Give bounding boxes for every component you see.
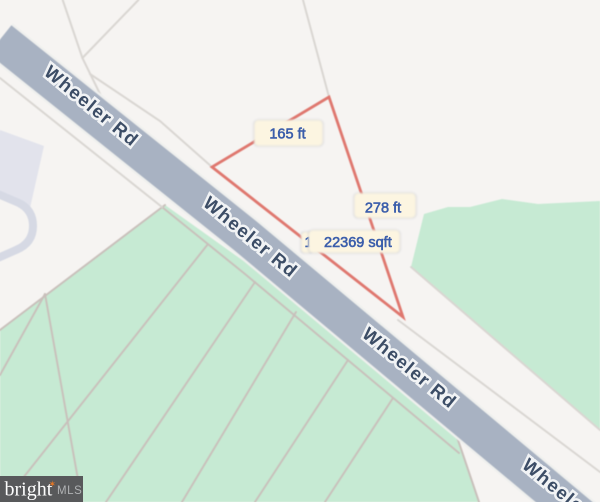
svg-text:bright: bright — [5, 479, 53, 501]
svg-text:278 ft: 278 ft — [365, 201, 401, 217]
svg-text:22369 sqft: 22369 sqft — [324, 235, 392, 251]
svg-text:165 ft: 165 ft — [269, 127, 305, 143]
svg-text:MLS: MLS — [57, 485, 82, 497]
svg-text:✶: ✶ — [49, 479, 57, 489]
